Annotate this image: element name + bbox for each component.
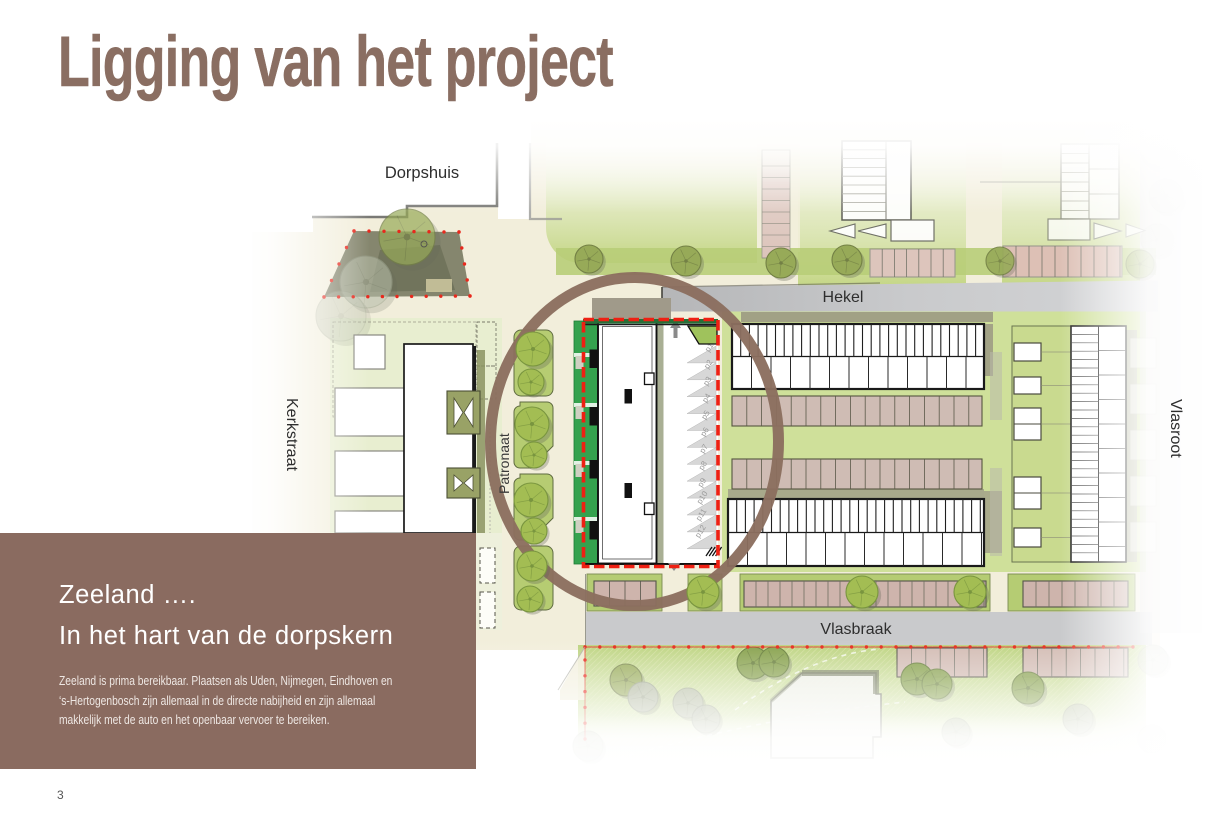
svg-text:Vlasroot: Vlasroot [1167, 399, 1184, 458]
svg-text:Patronaat: Patronaat [496, 433, 512, 494]
svg-text:Vlasbraak: Vlasbraak [820, 621, 892, 638]
svg-text:Hekel: Hekel [823, 289, 864, 306]
svg-text:Kerkstraat: Kerkstraat [283, 398, 300, 471]
svg-text:Dorpshuis: Dorpshuis [385, 164, 459, 182]
